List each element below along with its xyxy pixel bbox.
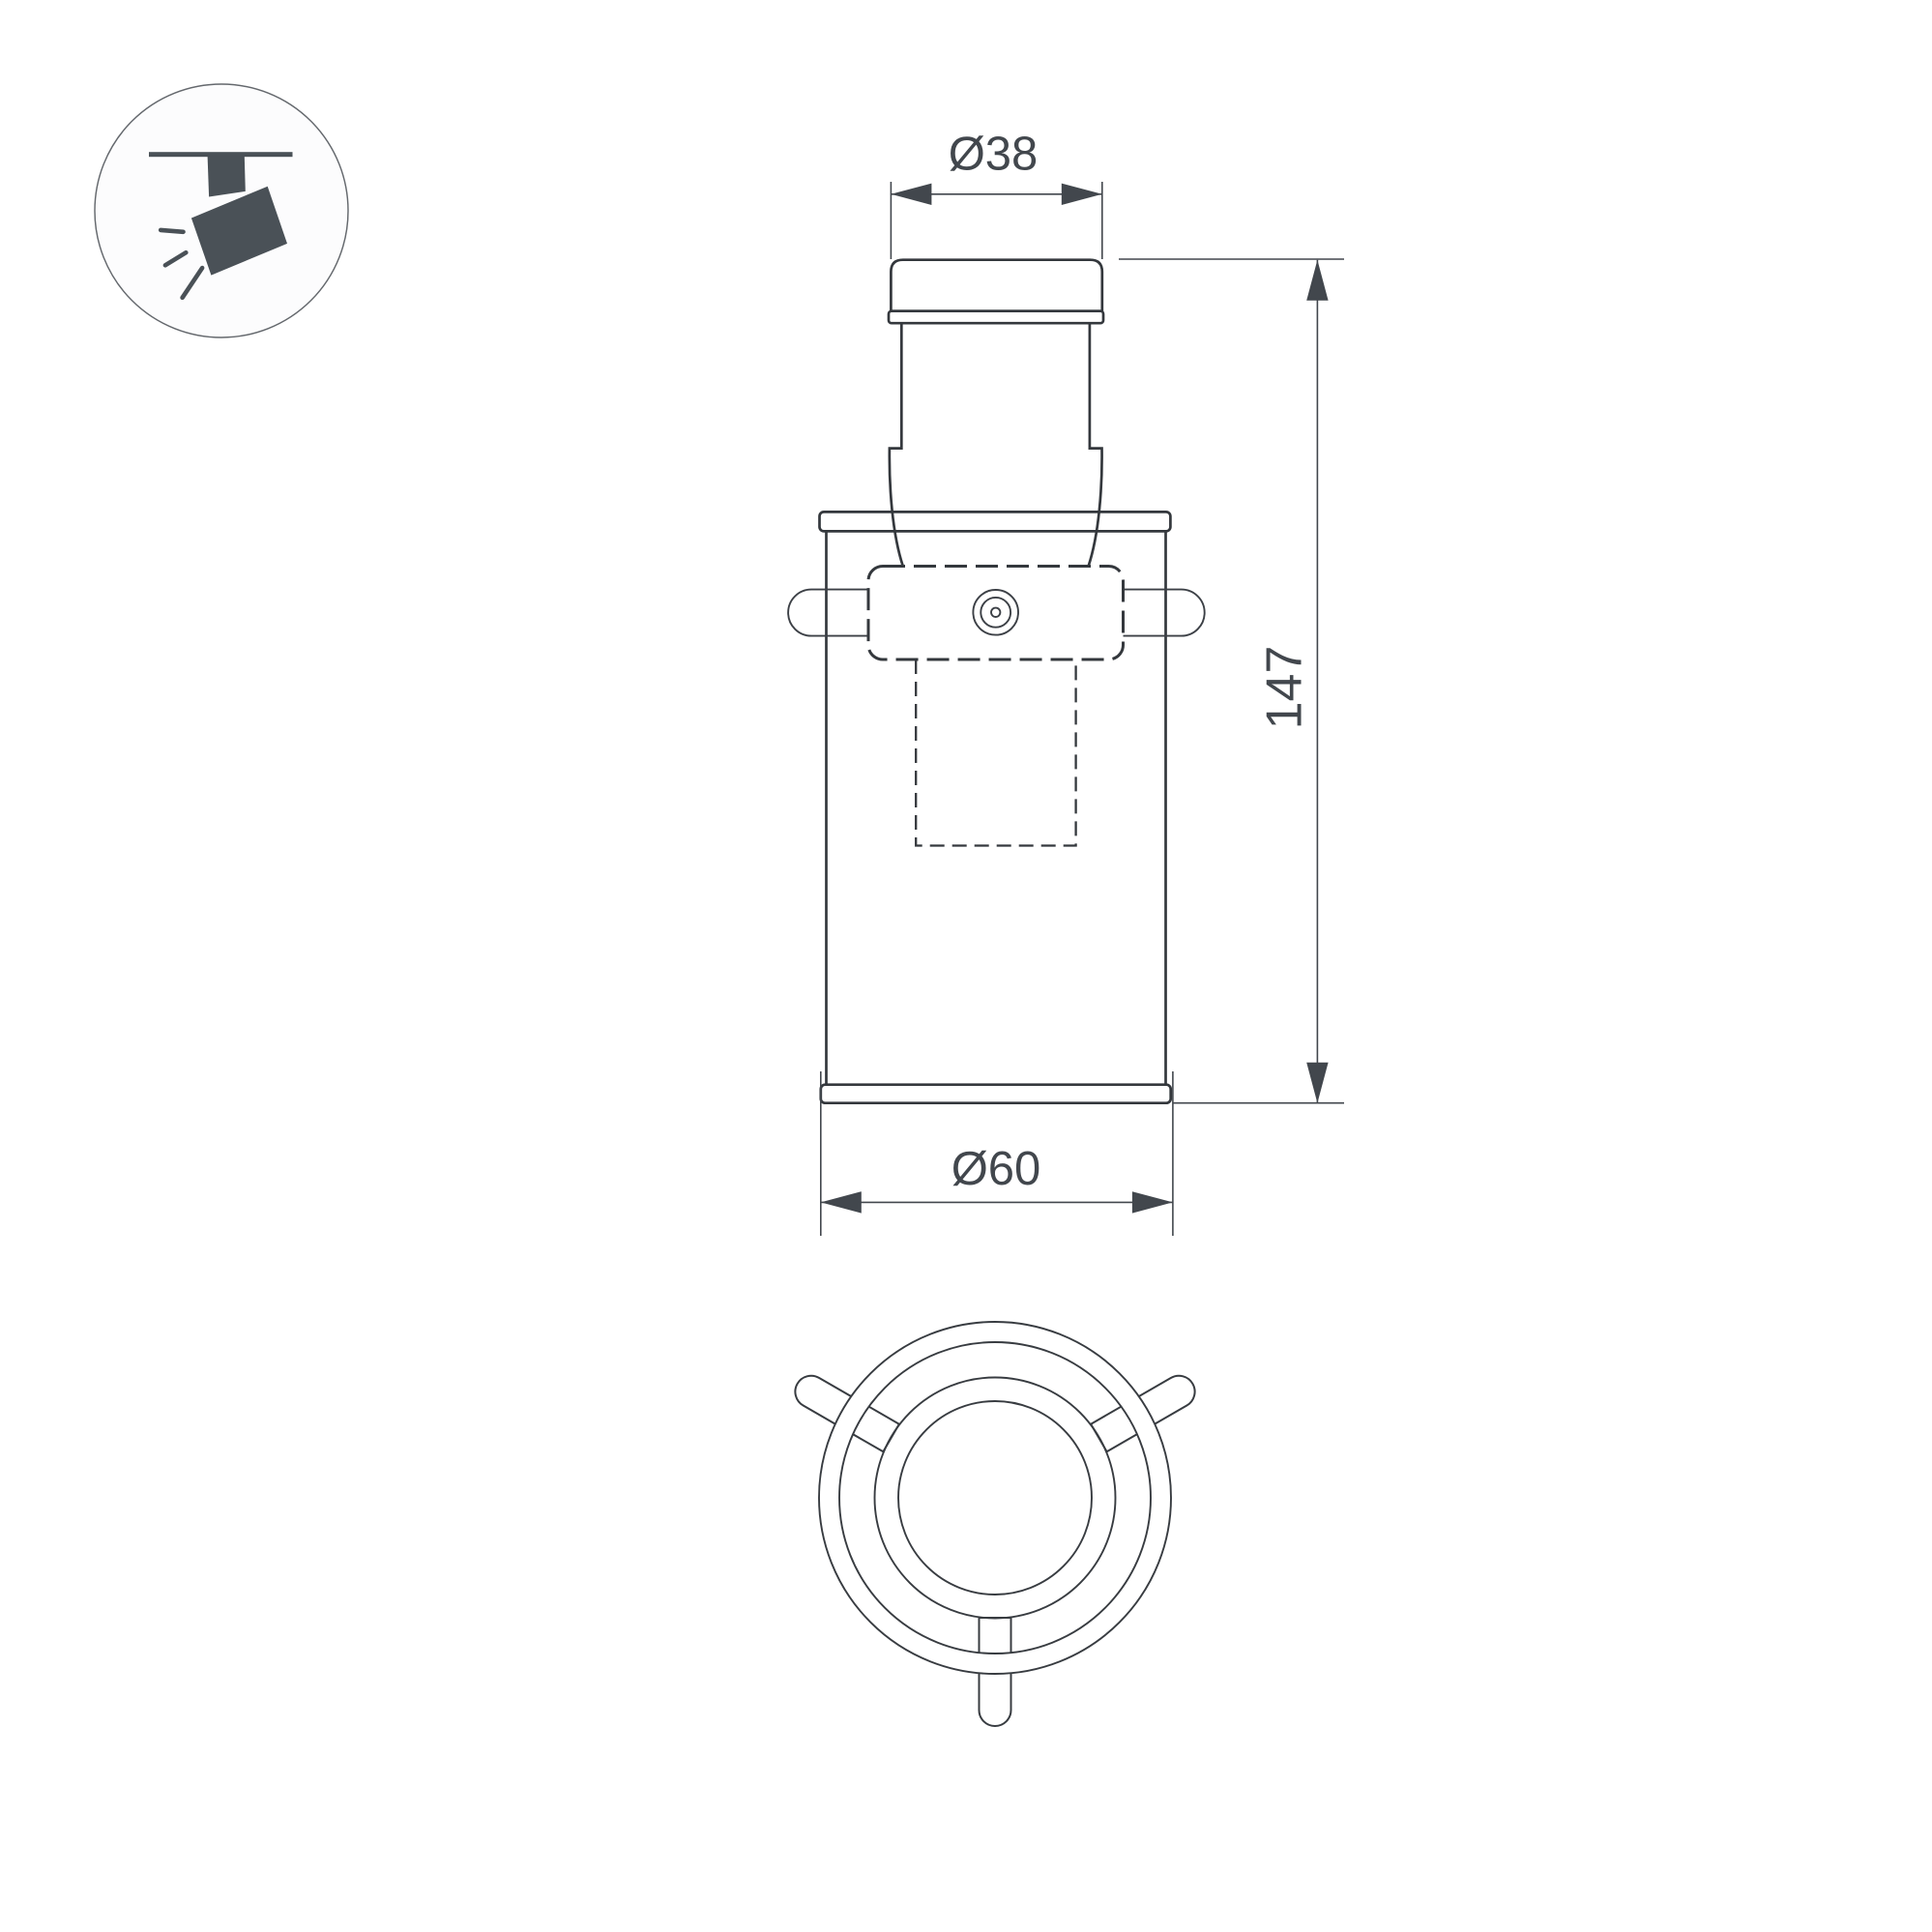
svg-text:147: 147 xyxy=(1257,646,1313,730)
svg-text:Ø60: Ø60 xyxy=(951,1143,1041,1195)
svg-text:Ø38: Ø38 xyxy=(949,129,1039,181)
